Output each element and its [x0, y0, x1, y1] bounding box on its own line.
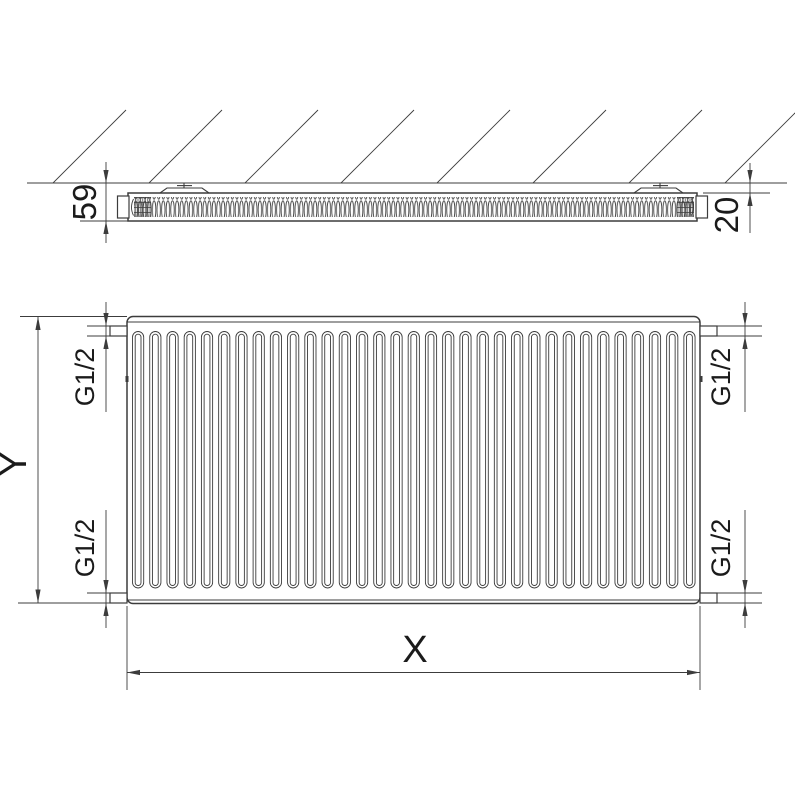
panel-rib	[566, 334, 572, 585]
fin-end-grid-left	[134, 197, 151, 217]
panel-rib	[583, 334, 589, 585]
panel-rib	[201, 332, 212, 589]
connection-label-bottom-right: G1/2	[706, 519, 736, 578]
panel-rib	[221, 334, 227, 585]
panel-rib	[376, 334, 382, 585]
panel-rib	[445, 334, 451, 585]
panel-rib	[322, 332, 333, 589]
panel-rib	[305, 332, 316, 589]
panel-rib	[359, 334, 365, 585]
panel-rib	[308, 334, 314, 585]
panel-rib	[270, 332, 281, 589]
depth-dimension-label: 59	[66, 184, 103, 221]
connection-label-bottom-left: G1/2	[70, 519, 100, 578]
convection-fins	[134, 197, 694, 217]
dimension-connection-bottom-right: G1/2	[706, 510, 762, 628]
panel-rib	[288, 332, 299, 589]
connection-label-top-right: G1/2	[706, 348, 736, 407]
panel-rib	[408, 332, 419, 589]
wall-distance-dimension-label: 20	[708, 197, 745, 234]
height-dimension-label: Y	[0, 451, 35, 476]
panel-rib	[170, 334, 176, 585]
panel-rib	[667, 332, 678, 589]
wall-hatching	[53, 110, 798, 183]
connection-label-top-left: G1/2	[70, 348, 100, 407]
connection-stub-top-left	[110, 326, 127, 336]
panel-rib	[512, 332, 523, 589]
connection-stub-top-right	[700, 326, 717, 336]
panel-rib	[463, 334, 469, 585]
panel-ribs	[133, 332, 696, 589]
panel-rib	[425, 332, 436, 589]
panel-rib	[253, 332, 264, 589]
panel-rib	[549, 334, 555, 585]
connection-stub-bottom-right	[700, 593, 717, 603]
panel-rib	[652, 334, 658, 585]
panel-rib	[187, 334, 193, 585]
panel-rib	[615, 332, 626, 589]
panel-rib	[497, 334, 503, 585]
panel-rib	[150, 332, 161, 589]
panel-rib	[204, 334, 210, 585]
panel-rib	[531, 334, 537, 585]
panel-rib	[339, 332, 350, 589]
dimension-connection-top-right: G1/2	[706, 302, 762, 412]
panel-rib	[514, 334, 520, 585]
panel-rib	[184, 332, 195, 589]
radiator-section-body	[118, 193, 708, 221]
panel-rib	[325, 334, 331, 585]
end-cap-left-arc	[132, 199, 134, 216]
panel-rib	[494, 332, 505, 589]
radiator-technical-drawing: 59 20 G1/2	[0, 0, 800, 800]
panel-rib	[684, 332, 695, 589]
width-dimension-label: X	[402, 629, 427, 671]
panel-rib	[687, 334, 693, 585]
wall-bracket-left	[160, 183, 209, 193]
end-cap-left	[118, 196, 130, 218]
panel-rib	[167, 332, 178, 589]
panel-rib	[529, 332, 540, 589]
drawing-canvas: 59 20 G1/2	[0, 0, 800, 800]
panel-rib	[290, 334, 296, 585]
fin-end-grid-right	[677, 197, 694, 217]
panel-rib	[239, 334, 245, 585]
panel-rib	[600, 334, 606, 585]
panel-rib	[219, 332, 230, 589]
end-cap-right	[696, 196, 708, 218]
panel-rib	[443, 332, 454, 589]
front-view: G1/2 G1/2 G1/2 G1/2	[0, 302, 762, 690]
panel-rib	[618, 334, 624, 585]
dimension-height: Y	[0, 317, 127, 604]
dimension-width: X	[127, 606, 700, 690]
wall-bracket-right	[634, 183, 683, 193]
panel-rib	[563, 332, 574, 589]
panel-rib	[236, 332, 247, 589]
panel-rib	[598, 332, 609, 589]
panel-rib	[546, 332, 557, 589]
panel-rib	[133, 332, 144, 589]
dimension-wall-distance: 20	[703, 163, 770, 233]
panel-rib	[391, 332, 402, 589]
dimension-connection-top-left: G1/2	[70, 302, 110, 412]
panel-rib	[411, 334, 417, 585]
panel-rib	[394, 334, 400, 585]
panel-rib	[356, 332, 367, 589]
panel-rib	[428, 334, 434, 585]
panel-rib	[635, 334, 641, 585]
panel-rib	[480, 334, 486, 585]
panel-rib	[152, 334, 158, 585]
panel-rib	[460, 332, 471, 589]
panel-rib	[477, 332, 488, 589]
panel-rib	[669, 334, 675, 585]
dimension-connection-bottom-left: G1/2	[70, 510, 110, 628]
panel-rib	[649, 332, 660, 589]
panel-rib	[580, 332, 591, 589]
panel-rib	[632, 332, 643, 589]
panel-rib	[135, 334, 141, 585]
section-top-view: 59 20	[27, 110, 798, 243]
panel-rib	[342, 334, 348, 585]
connection-stub-bottom-left	[110, 593, 127, 603]
panel-rib	[374, 332, 385, 589]
panel-rib	[256, 334, 262, 585]
panel-rib	[273, 334, 279, 585]
